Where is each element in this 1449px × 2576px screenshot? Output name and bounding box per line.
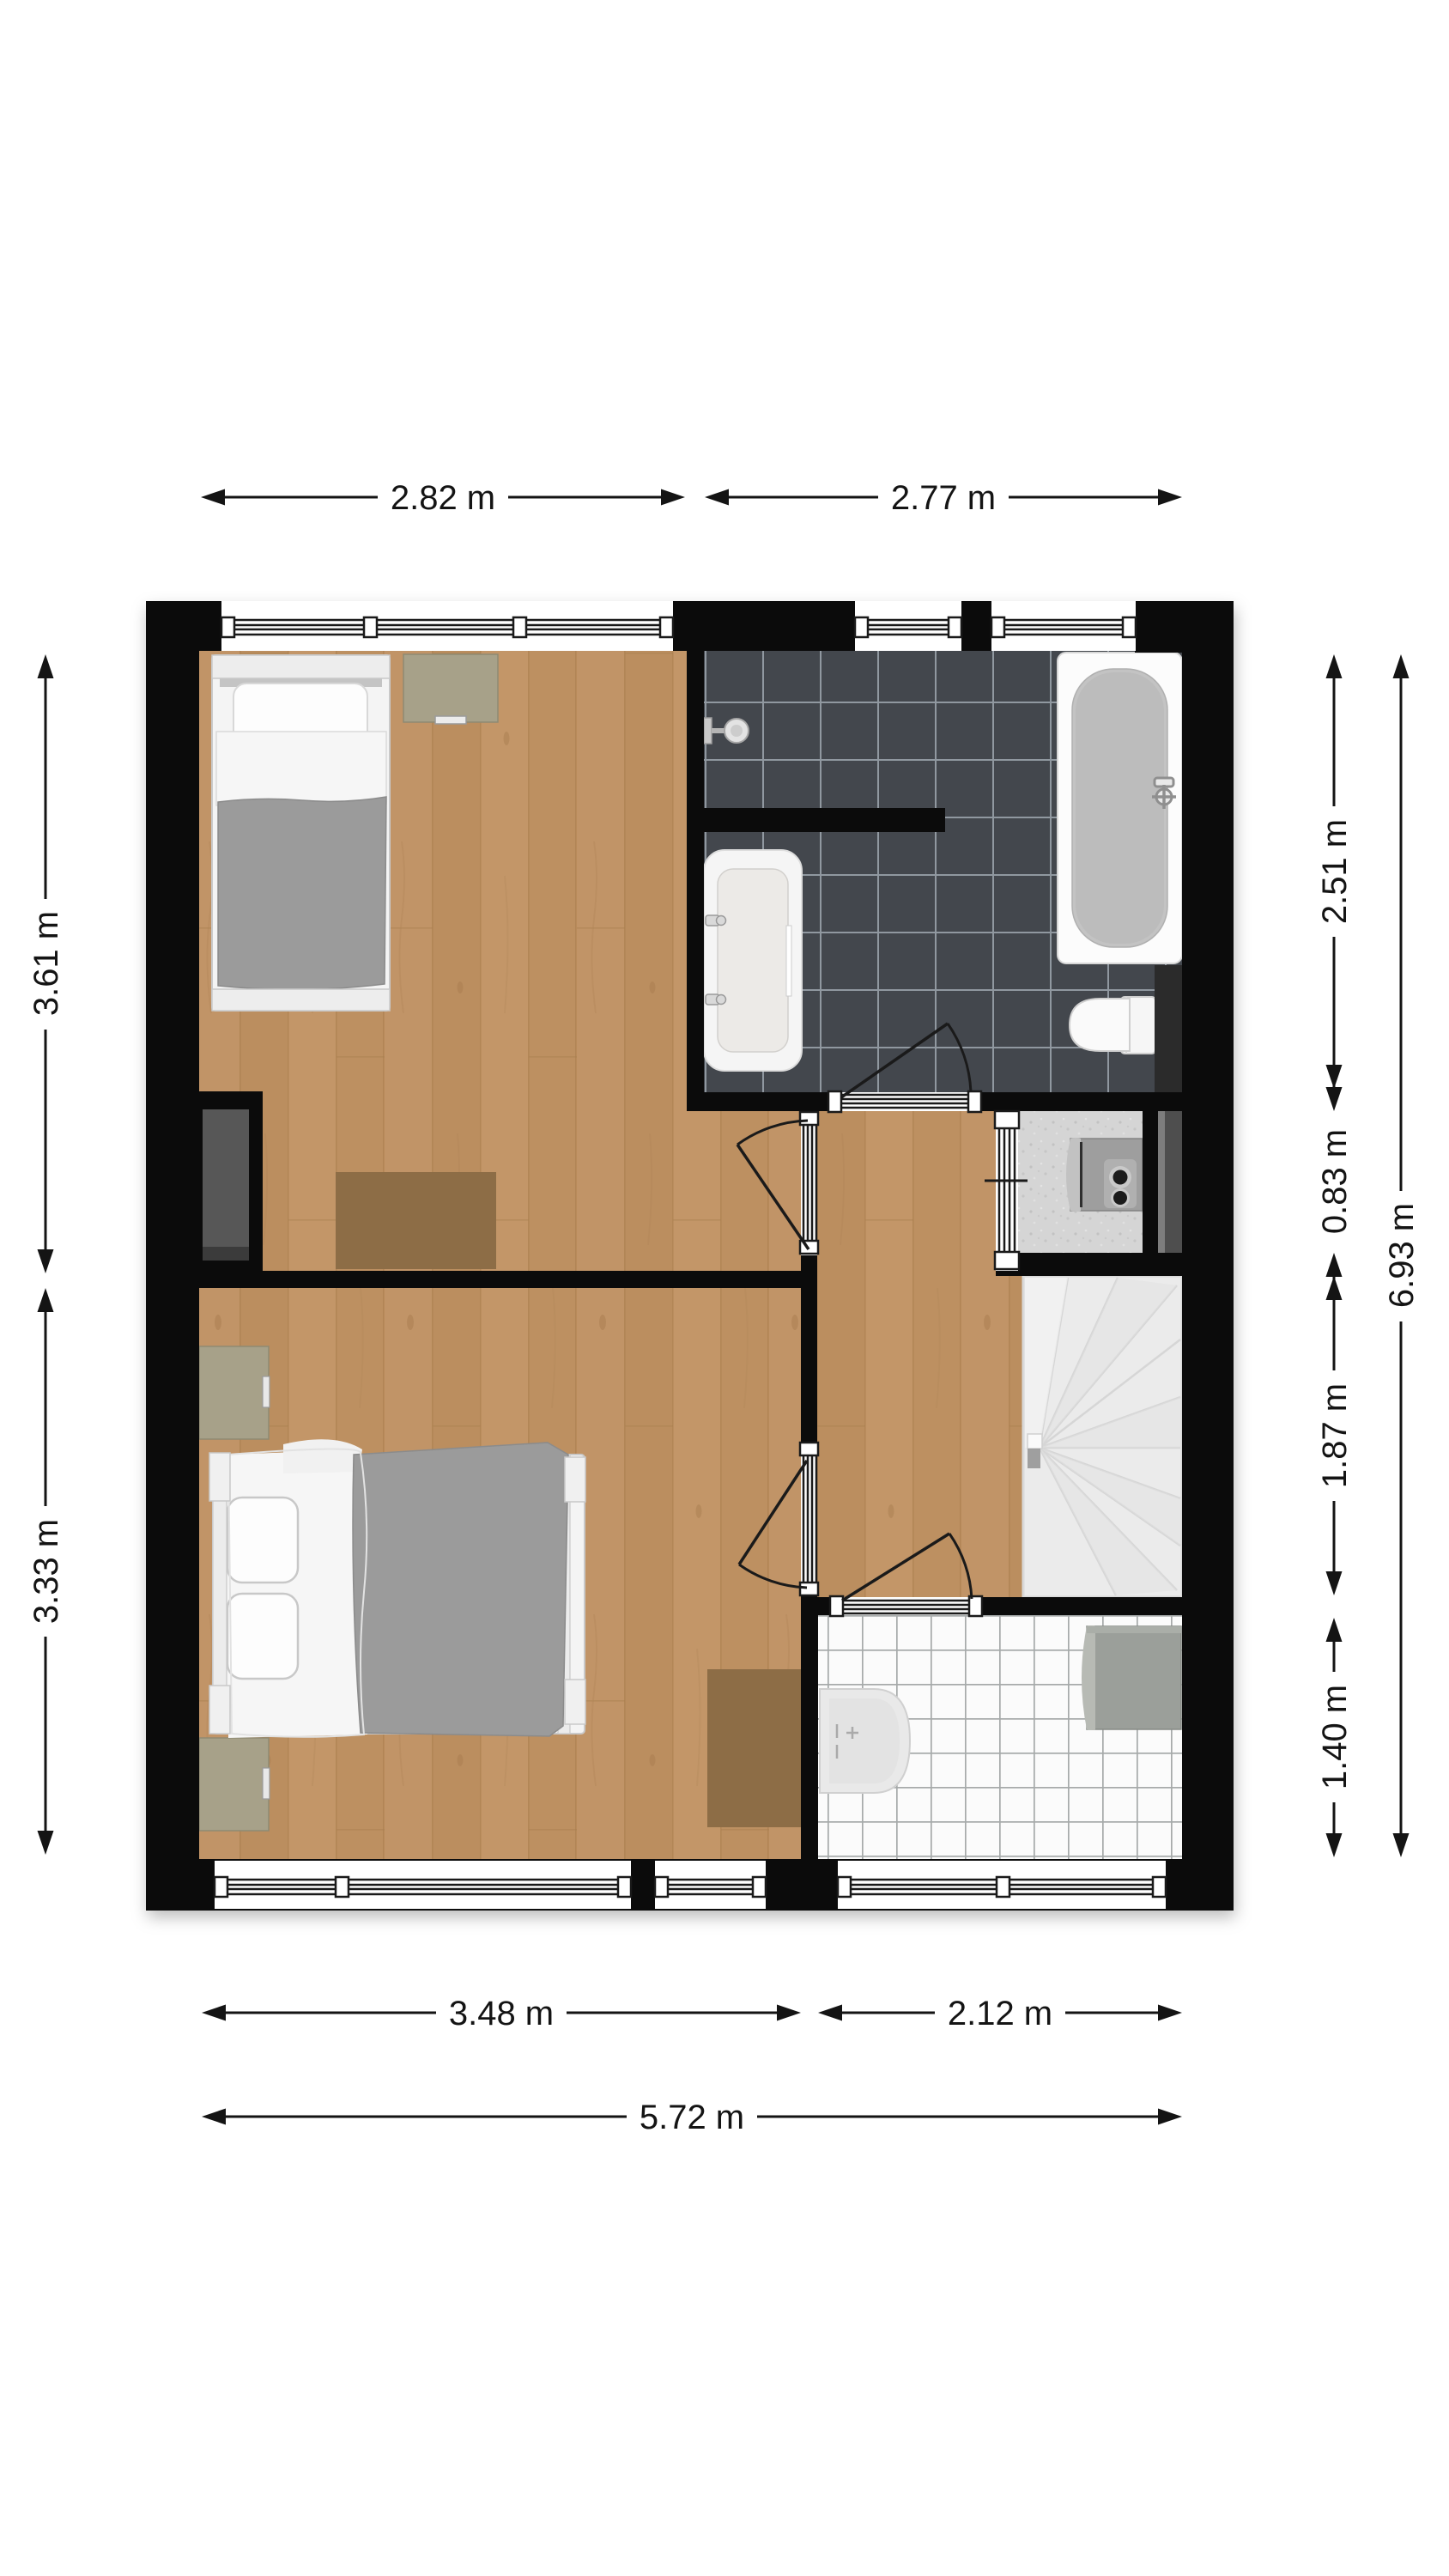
svg-text:2.77 m: 2.77 m	[891, 479, 996, 517]
svg-text:3.61 m: 3.61 m	[27, 911, 65, 1016]
svg-text:2.51 m: 2.51 m	[1316, 819, 1354, 924]
svg-text:1.87 m: 1.87 m	[1316, 1383, 1354, 1488]
svg-text:6.93 m: 6.93 m	[1383, 1203, 1421, 1308]
svg-text:2.12 m: 2.12 m	[948, 1995, 1052, 2032]
svg-text:1.40 m: 1.40 m	[1316, 1685, 1354, 1789]
svg-text:0.83 m: 0.83 m	[1316, 1129, 1354, 1234]
svg-text:3.48 m: 3.48 m	[449, 1995, 554, 2032]
svg-text:3.33 m: 3.33 m	[27, 1519, 65, 1624]
svg-text:5.72 m: 5.72 m	[640, 2099, 744, 2136]
svg-text:2.82 m: 2.82 m	[391, 479, 495, 517]
